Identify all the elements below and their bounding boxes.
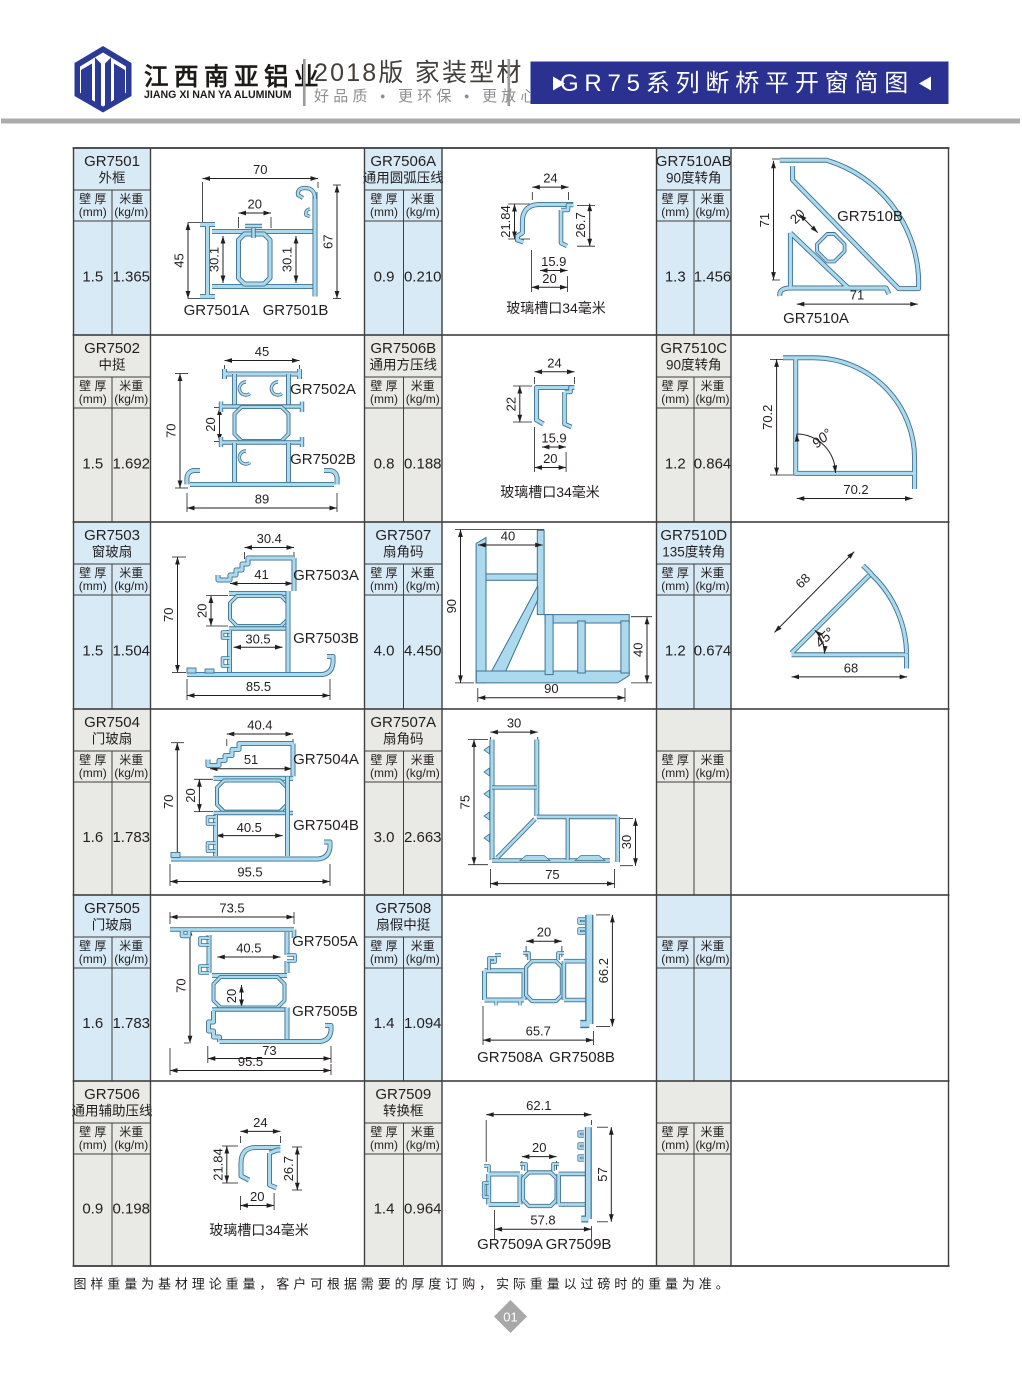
svg-text:(kg/m): (kg/m) (114, 1138, 148, 1152)
svg-text:0.8: 0.8 (374, 456, 395, 473)
svg-text:米重: 米重 (119, 379, 143, 393)
svg-text:GR7507: GR7507 (375, 527, 431, 544)
svg-text:(mm): (mm) (661, 205, 689, 219)
svg-text:米重: 米重 (411, 192, 435, 206)
svg-text:JIANG XI NAN YA ALUMINUM: JIANG XI NAN YA ALUMINUM (144, 89, 292, 101)
svg-text:(kg/m): (kg/m) (406, 766, 440, 780)
svg-text:GR7503: GR7503 (84, 527, 140, 544)
svg-text:26.7: 26.7 (281, 1156, 296, 1181)
svg-text:67: 67 (321, 235, 336, 249)
svg-text:24: 24 (547, 355, 561, 370)
svg-text:米重: 米重 (700, 566, 724, 580)
svg-text:65.7: 65.7 (526, 1024, 551, 1039)
svg-text:壁 厚: 壁 厚 (662, 938, 689, 953)
svg-text:2018版 家装型材: 2018版 家装型材 (314, 59, 524, 87)
svg-text:1.456: 1.456 (694, 269, 732, 286)
svg-text:95.5: 95.5 (238, 1054, 263, 1069)
svg-text:GR7505A: GR7505A (292, 933, 358, 950)
svg-text:GR7510AB: GR7510AB (656, 153, 732, 170)
svg-text:(kg/m): (kg/m) (114, 766, 148, 780)
svg-text:70: 70 (161, 795, 176, 809)
svg-text:GR7501: GR7501 (84, 153, 140, 170)
svg-text:壁 厚: 壁 厚 (79, 378, 106, 393)
svg-text:1.4: 1.4 (374, 1015, 395, 1032)
svg-text:90度转角: 90度转角 (666, 358, 722, 373)
svg-text:米重: 米重 (119, 1125, 143, 1139)
svg-text:GR7510D: GR7510D (660, 527, 727, 544)
svg-text:壁 厚: 壁 厚 (662, 752, 689, 767)
svg-text:米重: 米重 (411, 1125, 435, 1139)
svg-text:转换框: 转换框 (383, 1104, 424, 1119)
svg-text:20: 20 (248, 197, 262, 212)
svg-text:(kg/m): (kg/m) (114, 205, 148, 219)
svg-text:30.5: 30.5 (245, 632, 270, 647)
svg-text:62.1: 62.1 (526, 1098, 551, 1113)
svg-text:GR7510B: GR7510B (837, 208, 903, 225)
svg-text:(kg/m): (kg/m) (406, 392, 440, 406)
svg-text:135度转角: 135度转角 (662, 545, 725, 560)
svg-text:70: 70 (161, 608, 176, 622)
svg-text:(kg/m): (kg/m) (114, 579, 148, 593)
svg-text:通用圆弧压线: 通用圆弧压线 (363, 171, 444, 186)
svg-text:(kg/m): (kg/m) (406, 952, 440, 966)
svg-text:壁 厚: 壁 厚 (79, 938, 106, 953)
svg-text:95.5: 95.5 (237, 865, 262, 880)
svg-text:(kg/m): (kg/m) (696, 205, 730, 219)
svg-text:40: 40 (631, 643, 646, 657)
svg-text:45: 45 (255, 344, 269, 359)
svg-text:1.5: 1.5 (82, 643, 103, 660)
svg-text:(mm): (mm) (370, 766, 398, 780)
svg-text:窗玻扇: 窗玻扇 (92, 544, 133, 560)
svg-text:壁 厚: 壁 厚 (662, 565, 689, 580)
svg-text:20: 20 (537, 925, 551, 940)
svg-text:壁 厚: 壁 厚 (370, 1124, 397, 1139)
svg-text:门玻扇: 门玻扇 (92, 732, 133, 747)
svg-text:90度转角: 90度转角 (666, 171, 722, 186)
svg-text:21.84: 21.84 (498, 205, 513, 238)
svg-text:68: 68 (844, 660, 858, 675)
svg-text:壁 厚: 壁 厚 (370, 378, 397, 393)
svg-text:0.188: 0.188 (404, 456, 442, 473)
svg-text:57.8: 57.8 (530, 1213, 555, 1228)
svg-text:扇角码: 扇角码 (383, 545, 424, 560)
svg-text:米重: 米重 (119, 566, 143, 580)
svg-text:GR7502: GR7502 (84, 340, 140, 357)
svg-text:90: 90 (444, 599, 459, 613)
svg-text:01: 01 (503, 1310, 517, 1325)
svg-text:GR7501B: GR7501B (263, 302, 329, 319)
svg-text:米重: 米重 (700, 939, 724, 953)
svg-text:GR7502B: GR7502B (290, 451, 356, 468)
svg-text:73: 73 (262, 1043, 276, 1058)
svg-text:GR7505: GR7505 (84, 900, 140, 917)
svg-text:(kg/m): (kg/m) (696, 579, 730, 593)
svg-text:0.198: 0.198 (112, 1201, 150, 1218)
svg-text:71: 71 (757, 213, 772, 227)
svg-text:壁 厚: 壁 厚 (662, 191, 689, 206)
svg-text:壁 厚: 壁 厚 (662, 1124, 689, 1139)
svg-text:20: 20 (183, 788, 198, 802)
svg-text:2.663: 2.663 (404, 829, 442, 846)
svg-text:GR7507A: GR7507A (370, 714, 436, 731)
svg-text:(kg/m): (kg/m) (406, 1138, 440, 1152)
svg-text:(kg/m): (kg/m) (696, 952, 730, 966)
svg-text:0.210: 0.210 (404, 269, 442, 286)
svg-text:41: 41 (254, 567, 268, 582)
svg-text:GR7503A: GR7503A (293, 567, 359, 584)
svg-text:73.5: 73.5 (219, 901, 244, 916)
svg-text:75: 75 (545, 867, 559, 882)
svg-text:85.5: 85.5 (246, 679, 271, 694)
svg-text:24: 24 (253, 1115, 267, 1130)
svg-text:1.094: 1.094 (404, 1015, 442, 1032)
svg-text:通用辅助压线: 通用辅助压线 (72, 1104, 153, 1119)
svg-text:壁 厚: 壁 厚 (662, 378, 689, 393)
svg-text:89: 89 (255, 492, 269, 507)
svg-text:米重: 米重 (411, 939, 435, 953)
svg-text:0.674: 0.674 (694, 643, 732, 660)
svg-text:(mm): (mm) (79, 392, 107, 406)
svg-text:(kg/m): (kg/m) (696, 766, 730, 780)
svg-text:1.6: 1.6 (82, 829, 103, 846)
svg-text:壁 厚: 壁 厚 (370, 191, 397, 206)
svg-text:45: 45 (172, 253, 187, 267)
svg-text:玻璃槽口34毫米: 玻璃槽口34毫米 (506, 300, 606, 316)
svg-text:(kg/m): (kg/m) (696, 1138, 730, 1152)
svg-text:GR7506A: GR7506A (370, 153, 436, 170)
svg-text:GR7508: GR7508 (375, 900, 431, 917)
svg-text:GR7508A: GR7508A (477, 1049, 543, 1066)
svg-text:(mm): (mm) (370, 579, 398, 593)
svg-text:26.7: 26.7 (573, 212, 588, 237)
svg-text:0.864: 0.864 (694, 456, 732, 473)
svg-text:(mm): (mm) (79, 766, 107, 780)
svg-text:1.3: 1.3 (665, 269, 686, 286)
svg-text:22: 22 (503, 397, 518, 411)
svg-text:15.9: 15.9 (541, 254, 566, 269)
svg-text:壁 厚: 壁 厚 (79, 752, 106, 767)
svg-text:GR7509B: GR7509B (546, 1236, 612, 1253)
svg-text:(mm): (mm) (661, 952, 689, 966)
svg-text:24: 24 (543, 171, 557, 186)
svg-text:(mm): (mm) (79, 579, 107, 593)
svg-text:好品质 ● 更环保 ● 更放心: 好品质 ● 更环保 ● 更放心 (314, 88, 540, 105)
svg-text:1.6: 1.6 (82, 1015, 103, 1032)
svg-text:GR7505B: GR7505B (292, 1003, 358, 1020)
svg-text:GR7504B: GR7504B (293, 817, 359, 834)
svg-text:1.504: 1.504 (112, 643, 150, 660)
svg-text:30.1: 30.1 (280, 247, 295, 272)
svg-text:(mm): (mm) (79, 952, 107, 966)
svg-text:米重: 米重 (119, 753, 143, 767)
svg-text:21.84: 21.84 (210, 1148, 225, 1181)
svg-text:通用方压线: 通用方压线 (370, 358, 438, 373)
svg-text:GR7510A: GR7510A (783, 310, 849, 327)
svg-text:(mm): (mm) (370, 205, 398, 219)
svg-text:米重: 米重 (411, 753, 435, 767)
svg-text:壁 厚: 壁 厚 (370, 752, 397, 767)
svg-text:GR7503B: GR7503B (293, 630, 359, 647)
svg-text:20: 20 (532, 1140, 546, 1155)
svg-text:图样重量为基材理论重量，客户可根据需要的厚度订购，实际重量以: 图样重量为基材理论重量，客户可根据需要的厚度订购，实际重量以过磅时的重量为准。 (74, 1277, 733, 1292)
svg-text:71: 71 (850, 288, 864, 303)
svg-text:75: 75 (458, 795, 473, 809)
svg-text:GR7509A: GR7509A (477, 1236, 543, 1253)
svg-text:中挺: 中挺 (99, 358, 126, 373)
svg-text:玻璃槽口34毫米: 玻璃槽口34毫米 (209, 1222, 309, 1238)
svg-text:90: 90 (544, 681, 558, 696)
svg-text:壁 厚: 壁 厚 (79, 191, 106, 206)
svg-text:(mm): (mm) (79, 1138, 107, 1152)
svg-text:0.9: 0.9 (82, 1201, 103, 1218)
svg-text:米重: 米重 (119, 192, 143, 206)
svg-text:1.4: 1.4 (374, 1201, 395, 1218)
svg-text:(kg/m): (kg/m) (406, 205, 440, 219)
svg-text:40.4: 40.4 (247, 718, 272, 733)
svg-text:1.692: 1.692 (112, 456, 150, 473)
svg-text:(mm): (mm) (661, 392, 689, 406)
svg-text:米重: 米重 (119, 939, 143, 953)
svg-text:1.2: 1.2 (665, 643, 686, 660)
svg-text:GR7504A: GR7504A (293, 751, 359, 768)
svg-text:40.5: 40.5 (237, 820, 262, 835)
svg-text:20: 20 (542, 271, 556, 286)
svg-text:GR7508B: GR7508B (549, 1049, 615, 1066)
svg-text:20: 20 (250, 1189, 264, 1204)
svg-text:GR7504: GR7504 (84, 714, 140, 731)
svg-text:4.450: 4.450 (404, 643, 442, 660)
svg-text:GR7510C: GR7510C (660, 340, 727, 357)
svg-text:30: 30 (507, 716, 521, 731)
svg-text:70: 70 (253, 162, 267, 177)
svg-text:(mm): (mm) (370, 392, 398, 406)
svg-text:(mm): (mm) (661, 579, 689, 593)
svg-text:70.2: 70.2 (760, 405, 775, 430)
svg-text:57: 57 (595, 1167, 610, 1181)
svg-text:扇假中挺: 扇假中挺 (376, 918, 430, 933)
svg-text:3.0: 3.0 (374, 829, 395, 846)
svg-text:20: 20 (195, 604, 210, 618)
svg-text:70: 70 (174, 978, 189, 992)
svg-text:(kg/m): (kg/m) (114, 392, 148, 406)
svg-text:1.2: 1.2 (665, 456, 686, 473)
svg-text:米重: 米重 (700, 753, 724, 767)
svg-text:40: 40 (501, 529, 515, 544)
svg-text:1.5: 1.5 (82, 456, 103, 473)
svg-text:70: 70 (164, 424, 179, 438)
svg-text:4.0: 4.0 (374, 643, 395, 660)
svg-text:江西南亚铝业: 江西南亚铝业 (144, 62, 324, 91)
svg-text:66.2: 66.2 (596, 958, 611, 983)
svg-text:门玻扇: 门玻扇 (92, 918, 133, 933)
svg-text:70.2: 70.2 (843, 482, 868, 497)
svg-text:0.9: 0.9 (374, 269, 395, 286)
svg-text:外框: 外框 (99, 171, 126, 186)
svg-text:40.5: 40.5 (236, 941, 261, 956)
svg-text:GR7509: GR7509 (375, 1086, 431, 1103)
svg-text:20: 20 (203, 417, 218, 431)
svg-text:壁 厚: 壁 厚 (370, 938, 397, 953)
svg-text:GR7506B: GR7506B (370, 340, 436, 357)
svg-text:米重: 米重 (700, 1125, 724, 1139)
svg-text:GR7502A: GR7502A (290, 381, 356, 398)
svg-text:米重: 米重 (411, 566, 435, 580)
svg-text:1.783: 1.783 (112, 829, 150, 846)
svg-text:米重: 米重 (700, 379, 724, 393)
svg-text:米重: 米重 (700, 192, 724, 206)
svg-text:(mm): (mm) (370, 1138, 398, 1152)
svg-text:20: 20 (224, 989, 239, 1003)
svg-text:0.964: 0.964 (404, 1201, 442, 1218)
svg-text:(mm): (mm) (661, 766, 689, 780)
svg-text:GR75系列断桥平开窗简图: GR75系列断桥平开窗简图 (560, 70, 914, 97)
svg-text:1.783: 1.783 (112, 1015, 150, 1032)
svg-text:扇角码: 扇角码 (383, 732, 424, 747)
svg-text:壁 厚: 壁 厚 (79, 565, 106, 580)
svg-text:玻璃槽口34毫米: 玻璃槽口34毫米 (500, 484, 600, 500)
svg-text:壁 厚: 壁 厚 (370, 565, 397, 580)
svg-text:GR7506: GR7506 (84, 1086, 140, 1103)
svg-text:30: 30 (619, 835, 634, 849)
svg-text:(mm): (mm) (79, 205, 107, 219)
svg-text:1.5: 1.5 (82, 269, 103, 286)
svg-text:(mm): (mm) (661, 1138, 689, 1152)
svg-text:15.9: 15.9 (541, 431, 566, 446)
svg-text:(kg/m): (kg/m) (696, 392, 730, 406)
svg-text:(kg/m): (kg/m) (114, 952, 148, 966)
svg-text:20: 20 (543, 451, 557, 466)
svg-text:米重: 米重 (411, 379, 435, 393)
svg-text:(mm): (mm) (370, 952, 398, 966)
svg-text:(kg/m): (kg/m) (406, 579, 440, 593)
svg-text:30.4: 30.4 (257, 531, 282, 546)
svg-text:GR7501A: GR7501A (184, 302, 250, 319)
svg-text:51: 51 (244, 752, 258, 767)
svg-text:壁 厚: 壁 厚 (79, 1124, 106, 1139)
svg-text:1.365: 1.365 (112, 269, 150, 286)
